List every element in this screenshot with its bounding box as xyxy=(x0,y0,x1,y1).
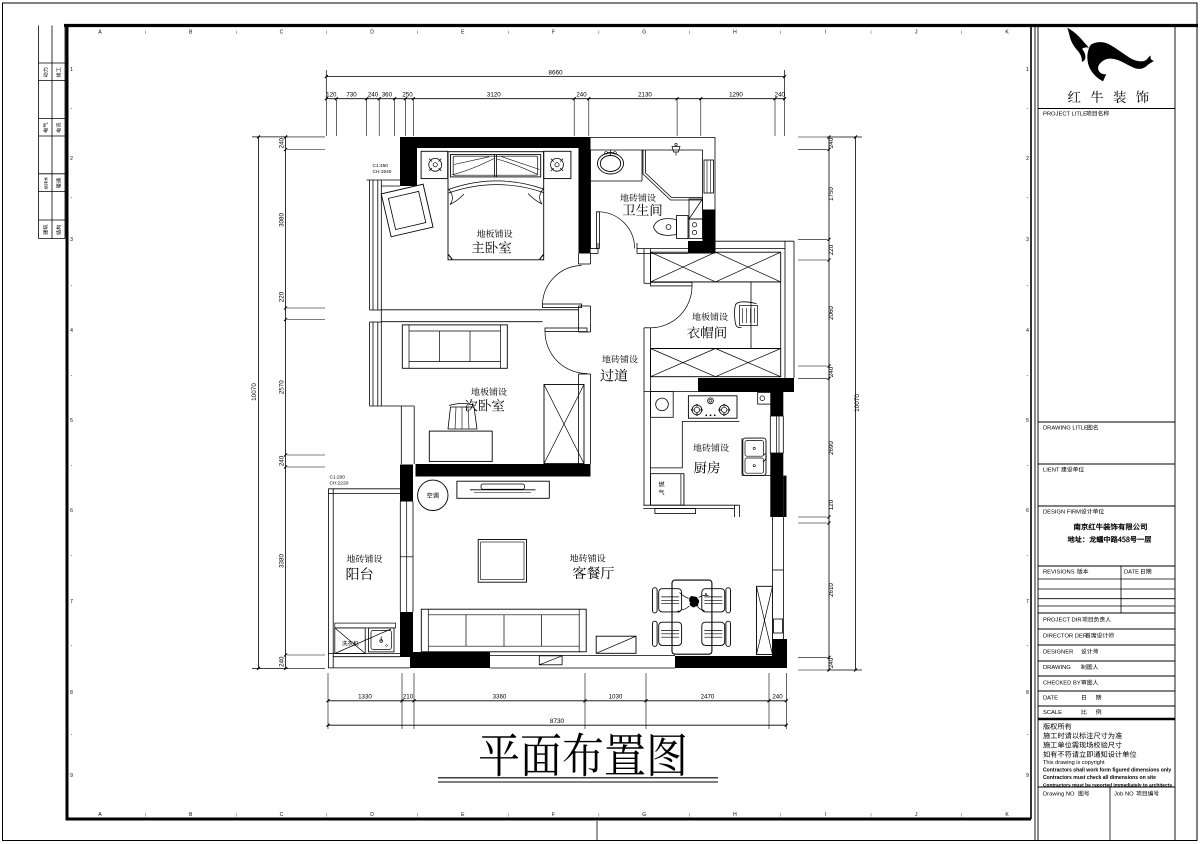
svg-text:3: 3 xyxy=(1026,237,1029,243)
svg-text:|: | xyxy=(689,812,690,817)
svg-text:1750: 1750 xyxy=(828,187,835,201)
svg-text:2060: 2060 xyxy=(828,306,835,320)
svg-text:G: G xyxy=(642,812,646,818)
svg-text:2570: 2570 xyxy=(278,380,285,394)
svg-text:|: | xyxy=(780,29,781,34)
svg-text:|: | xyxy=(689,29,690,34)
svg-text:|: | xyxy=(780,812,781,817)
svg-text:DRAWING: DRAWING xyxy=(1043,665,1071,671)
svg-text:8: 8 xyxy=(1026,690,1029,696)
svg-text:3120: 3120 xyxy=(487,92,501,99)
svg-text:2610: 2610 xyxy=(828,583,835,597)
svg-text:REVISIONS: REVISIONS xyxy=(1043,570,1075,576)
svg-text:|: | xyxy=(145,29,146,34)
svg-text:DESIGNER: DESIGNER xyxy=(1043,650,1073,656)
svg-text:|: | xyxy=(145,812,146,817)
svg-text:8660: 8660 xyxy=(548,69,563,76)
svg-text:120: 120 xyxy=(828,499,835,510)
svg-text:8: 8 xyxy=(70,690,73,696)
svg-text:C: C xyxy=(280,30,284,36)
svg-text:8730: 8730 xyxy=(550,718,565,725)
svg-text:240: 240 xyxy=(828,137,835,148)
svg-text:CH:1940: CH:1940 xyxy=(373,169,392,175)
svg-text:|: | xyxy=(870,29,871,34)
svg-text:220: 220 xyxy=(828,244,835,255)
svg-text:240: 240 xyxy=(775,92,786,99)
svg-text:360: 360 xyxy=(382,92,393,99)
svg-text:2: 2 xyxy=(70,156,73,162)
svg-text:Contractors must be reported i: Contractors must be reported immediately… xyxy=(1043,782,1172,788)
svg-text:|: | xyxy=(326,812,327,817)
svg-text:240: 240 xyxy=(828,657,835,668)
svg-text:2130: 2130 xyxy=(638,92,652,99)
svg-text:2: 2 xyxy=(1026,156,1029,162)
svg-text:4: 4 xyxy=(1026,328,1029,334)
svg-text:H: H xyxy=(733,812,737,818)
svg-text:|: | xyxy=(508,812,509,817)
svg-text:F: F xyxy=(552,812,555,818)
svg-text:240: 240 xyxy=(772,694,783,701)
svg-text:250: 250 xyxy=(402,92,413,99)
svg-text:|: | xyxy=(598,29,599,34)
svg-text:1290: 1290 xyxy=(729,92,743,99)
svg-text:5: 5 xyxy=(70,418,73,424)
svg-text:220: 220 xyxy=(278,291,285,302)
svg-text:DATE: DATE xyxy=(1124,570,1139,576)
svg-text:240: 240 xyxy=(576,92,587,99)
svg-text:3360: 3360 xyxy=(493,694,507,701)
svg-text:|: | xyxy=(417,29,418,34)
svg-text:I: I xyxy=(825,812,826,818)
svg-text:1330: 1330 xyxy=(358,694,372,701)
svg-text:|: | xyxy=(417,812,418,817)
svg-text:PROJECT DIR: PROJECT DIR xyxy=(1043,618,1082,624)
svg-text:240: 240 xyxy=(278,137,285,148)
svg-text:Contractors must check all dim: Contractors must check all dimensions on… xyxy=(1043,775,1156,781)
svg-text:210: 210 xyxy=(403,694,414,701)
svg-text:DESIGN FIRM: DESIGN FIRM xyxy=(1043,510,1081,516)
svg-text:|: | xyxy=(598,812,599,817)
svg-text:This drawing is copyright: This drawing is copyright xyxy=(1043,760,1105,766)
svg-text:G: G xyxy=(642,30,646,36)
svg-text:H: H xyxy=(733,30,737,36)
svg-text:120: 120 xyxy=(326,92,337,99)
svg-text:4: 4 xyxy=(70,328,73,334)
svg-text:C: C xyxy=(280,812,284,818)
svg-text:|: | xyxy=(961,29,962,34)
svg-text:240: 240 xyxy=(368,92,379,99)
svg-text:3: 3 xyxy=(70,237,73,243)
svg-text:10070: 10070 xyxy=(854,394,861,412)
svg-text:3080: 3080 xyxy=(278,213,285,227)
svg-text:DATE: DATE xyxy=(1043,696,1058,702)
svg-text:9: 9 xyxy=(1026,773,1029,779)
svg-text:5: 5 xyxy=(1026,418,1029,424)
svg-text:730: 730 xyxy=(346,92,357,99)
svg-text:I: I xyxy=(825,30,826,36)
svg-text:D: D xyxy=(370,30,374,36)
svg-text:9: 9 xyxy=(70,773,73,779)
svg-text:240: 240 xyxy=(828,366,835,377)
svg-text:|: | xyxy=(326,29,327,34)
svg-text:6: 6 xyxy=(70,508,73,514)
svg-text:|: | xyxy=(961,812,962,817)
svg-text:2470: 2470 xyxy=(701,694,715,701)
svg-text:1030: 1030 xyxy=(609,694,623,701)
svg-text:SCALE: SCALE xyxy=(1043,710,1062,716)
svg-text:D: D xyxy=(370,812,374,818)
svg-text:240: 240 xyxy=(278,656,285,667)
svg-text:1: 1 xyxy=(1026,67,1029,73)
svg-text:3380: 3380 xyxy=(278,554,285,568)
svg-text:7: 7 xyxy=(1026,599,1029,605)
svg-text:1: 1 xyxy=(70,67,73,73)
svg-text:Contractors shall work form fi: Contractors shall work form figured dime… xyxy=(1043,768,1171,774)
svg-text:240: 240 xyxy=(278,455,285,466)
svg-text:DIRECTOR DER: DIRECTOR DER xyxy=(1043,634,1087,640)
svg-text:C1:200: C1:200 xyxy=(330,475,346,481)
svg-text:|: | xyxy=(508,29,509,34)
svg-text:|: | xyxy=(870,812,871,817)
svg-text:DRAWING LITLE: DRAWING LITLE xyxy=(1043,426,1088,432)
svg-text:7: 7 xyxy=(70,599,73,605)
svg-text:|: | xyxy=(236,812,237,817)
svg-text:PROJECT LITLE: PROJECT LITLE xyxy=(1043,112,1087,118)
svg-text:6: 6 xyxy=(1026,508,1029,514)
svg-text:Drawing NO: Drawing NO xyxy=(1043,792,1075,798)
svg-text:C1:450: C1:450 xyxy=(373,163,389,169)
svg-text:F: F xyxy=(552,30,555,36)
svg-text:2690: 2690 xyxy=(828,441,835,455)
svg-text:10070: 10070 xyxy=(251,383,258,401)
svg-text:|: | xyxy=(236,29,237,34)
svg-text:Job NO: Job NO xyxy=(1114,792,1134,798)
svg-text:CH:2220: CH:2220 xyxy=(330,481,349,487)
svg-text:LIENT: LIENT xyxy=(1043,468,1060,474)
svg-text:CHECKED BY: CHECKED BY xyxy=(1043,681,1081,687)
